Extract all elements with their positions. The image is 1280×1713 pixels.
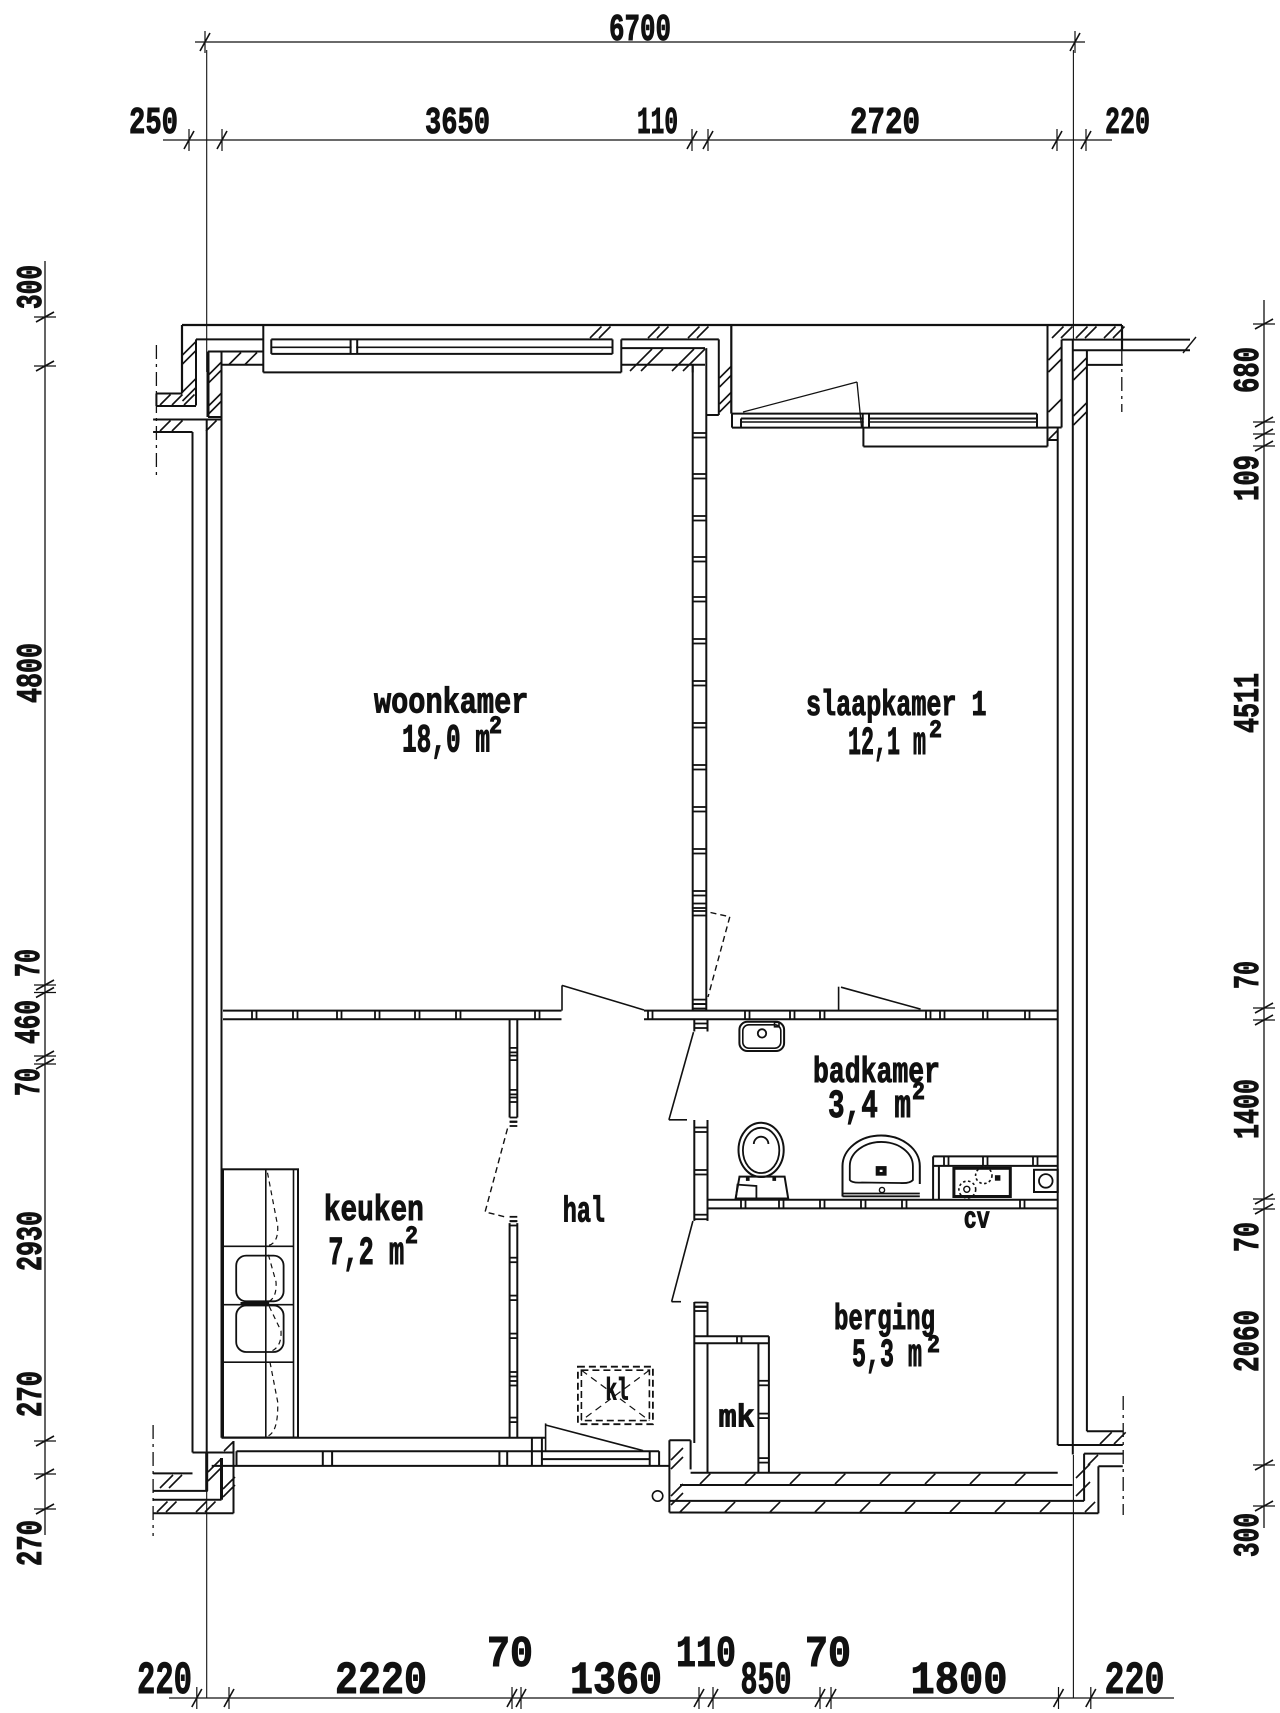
- svg-text:2930: 2930: [11, 1211, 52, 1271]
- svg-text:70: 70: [487, 1630, 533, 1680]
- svg-text:2: 2: [489, 712, 502, 741]
- svg-text:850: 850: [741, 1655, 792, 1707]
- svg-text:70: 70: [9, 1068, 50, 1096]
- svg-text:2: 2: [405, 1222, 418, 1251]
- svg-text:2720: 2720: [850, 102, 920, 145]
- svg-text:300: 300: [11, 265, 52, 309]
- svg-text:109: 109: [1228, 455, 1269, 501]
- svg-text:70: 70: [805, 1630, 851, 1680]
- svg-text:110: 110: [676, 1630, 736, 1680]
- svg-text:70: 70: [1228, 1222, 1269, 1252]
- svg-text:220: 220: [1105, 102, 1150, 145]
- svg-text:1800: 1800: [911, 1655, 1008, 1707]
- svg-text:2060: 2060: [1228, 1310, 1269, 1372]
- svg-text:7,2 m: 7,2 m: [328, 1232, 404, 1277]
- svg-text:270: 270: [11, 1371, 52, 1417]
- svg-text:2: 2: [929, 716, 942, 745]
- svg-text:hal: hal: [563, 1192, 605, 1233]
- svg-text:slaapkamer 1: slaapkamer 1: [806, 685, 987, 726]
- svg-text:3,4 m: 3,4 m: [828, 1085, 911, 1130]
- svg-text:1400: 1400: [1228, 1079, 1269, 1139]
- svg-text:270: 270: [11, 1520, 52, 1566]
- svg-text:kl: kl: [606, 1375, 629, 1410]
- svg-text:mk: mk: [719, 1400, 755, 1437]
- svg-text:300: 300: [1228, 1513, 1269, 1557]
- svg-text:18,0 m: 18,0 m: [402, 720, 490, 765]
- svg-text:12,1 m: 12,1 m: [848, 722, 926, 767]
- svg-text:680: 680: [1228, 347, 1269, 393]
- svg-text:250: 250: [129, 102, 178, 145]
- svg-text:220: 220: [1105, 1655, 1165, 1707]
- svg-text:70: 70: [1228, 961, 1269, 989]
- svg-text:woonkamer: woonkamer: [374, 682, 529, 723]
- svg-text:4511: 4511: [1228, 673, 1269, 733]
- svg-text:2220: 2220: [335, 1655, 427, 1707]
- svg-text:5,3 m: 5,3 m: [852, 1334, 922, 1379]
- svg-text:110: 110: [637, 102, 678, 145]
- svg-text:2: 2: [927, 1331, 940, 1360]
- svg-text:1360: 1360: [570, 1655, 662, 1707]
- svg-text:460: 460: [9, 1000, 50, 1044]
- svg-text:4800: 4800: [11, 643, 52, 703]
- svg-text:3650: 3650: [425, 102, 490, 145]
- svg-text:70: 70: [9, 949, 50, 977]
- svg-text:2: 2: [912, 1078, 925, 1107]
- svg-text:6700: 6700: [609, 9, 671, 52]
- svg-text:220: 220: [137, 1655, 192, 1707]
- svg-text:cv: cv: [964, 1204, 990, 1238]
